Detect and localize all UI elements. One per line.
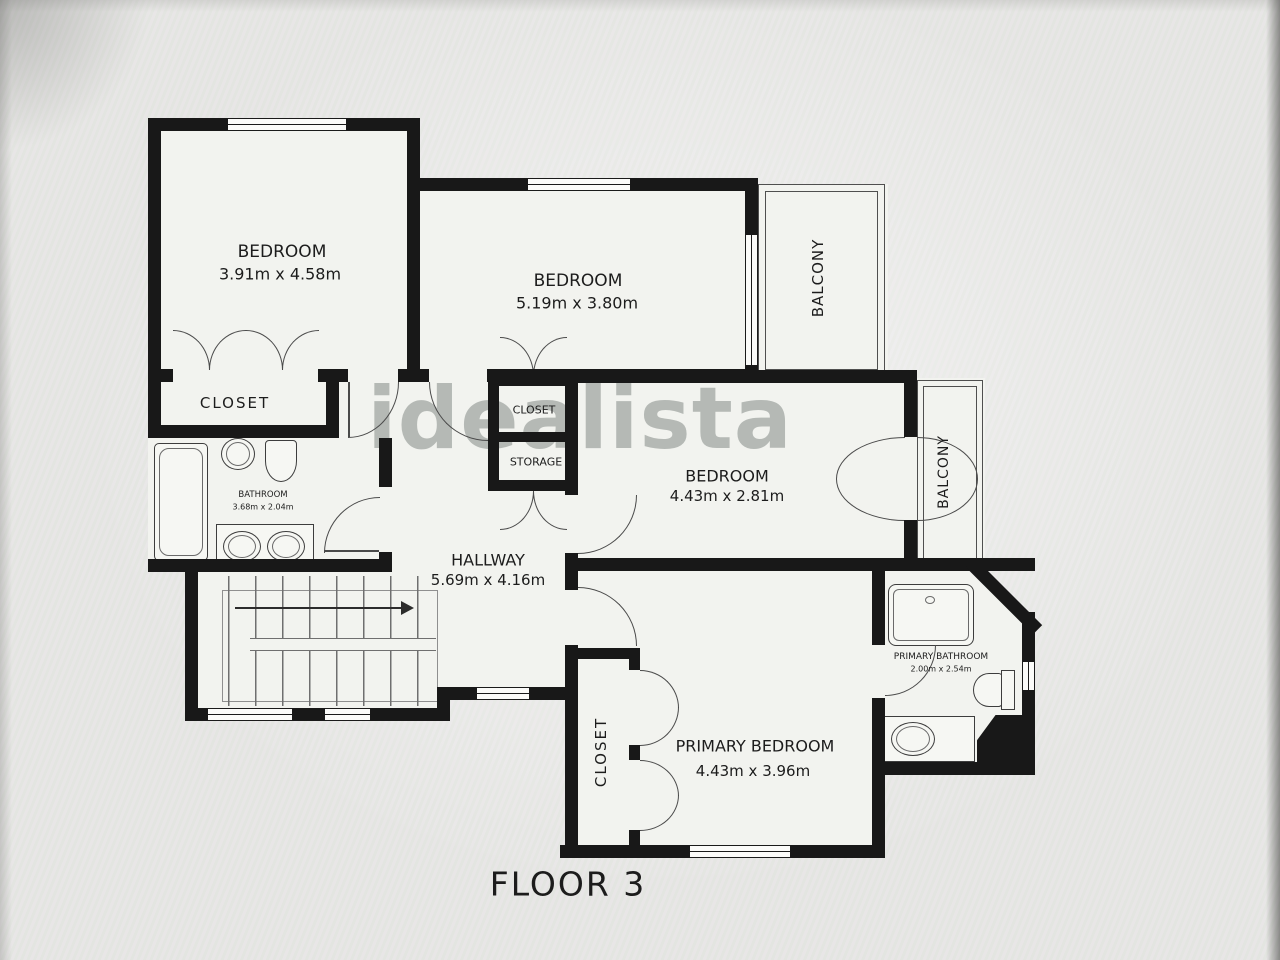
wall [872, 698, 885, 857]
window [745, 235, 758, 365]
wall [1022, 612, 1035, 662]
window [208, 708, 292, 721]
closet-bedroom1-label: CLOSET [200, 394, 270, 412]
floor-title: FLOOR 3 [490, 865, 647, 904]
wall [565, 370, 578, 495]
wall [407, 118, 420, 382]
bathtub-inner [159, 448, 203, 556]
wall [379, 438, 392, 487]
bedroom-1-label: BEDROOM [238, 242, 327, 262]
toilet-primary-tank [1001, 670, 1015, 710]
wall [488, 375, 499, 491]
bathroom-dims: 3.68m x 2.04m [232, 503, 293, 512]
stairs-landing-rail [250, 638, 436, 651]
stairs-direction-line [235, 607, 403, 609]
sink-primary-inner [896, 726, 930, 752]
primary-bedroom-label: PRIMARY BEDROOM [676, 737, 835, 756]
wall [629, 648, 640, 670]
primary-bathroom-dims: 2.00m x 2.54m [910, 665, 971, 674]
balcony-top-label: BALCONY [809, 239, 827, 318]
closet-primary-label: CLOSET [592, 717, 610, 787]
sink-inner [272, 535, 300, 558]
bedroom-2-label: BEDROOM [534, 271, 623, 291]
storage-label: STORAGE [510, 456, 562, 469]
wall [872, 558, 1035, 571]
bedroom-2-dims: 5.19m x 3.80m [516, 294, 638, 313]
sink-inner [228, 535, 256, 558]
wall [790, 845, 885, 858]
window [528, 178, 630, 191]
door-leaf [324, 550, 379, 552]
wall [148, 118, 161, 438]
bedroom-3-label: BEDROOM [685, 467, 769, 486]
wall [565, 558, 885, 571]
window [477, 687, 529, 700]
hallway-label: HALLWAY [451, 551, 525, 570]
bedroom-1-dims: 3.91m x 4.58m [219, 265, 341, 284]
window [1022, 662, 1035, 690]
wall [148, 369, 173, 382]
wall [1022, 690, 1035, 718]
toilet-inner [226, 442, 250, 466]
hallway-dims: 5.69m x 4.16m [431, 571, 545, 589]
shower-drain [925, 596, 935, 604]
window [325, 708, 370, 721]
bedroom-3-dims: 4.43m x 2.81m [670, 487, 784, 505]
primary-bedroom-dims: 4.43m x 3.96m [696, 762, 810, 780]
wall [575, 370, 917, 383]
primary-bathroom-label: PRIMARY BATHROOM [894, 652, 988, 662]
wall [629, 745, 640, 760]
window [228, 118, 346, 131]
wall [565, 645, 578, 857]
wall [185, 572, 198, 721]
wall [872, 762, 1035, 775]
bidet [265, 440, 297, 482]
wall [629, 830, 640, 857]
bathroom-label: BATHROOM [238, 490, 287, 500]
stairs-direction-arrow [401, 601, 414, 615]
wall [872, 558, 885, 645]
wall [560, 845, 690, 858]
window [690, 845, 790, 858]
wall [398, 369, 429, 382]
balcony-right-label: BALCONY [936, 435, 952, 509]
floor-plan-photo: idealista [0, 0, 1280, 960]
wall [904, 370, 917, 437]
door-leaf [348, 382, 350, 437]
wall [148, 559, 392, 572]
wall [148, 425, 339, 438]
closet-hall-label: CLOSET [513, 404, 556, 417]
